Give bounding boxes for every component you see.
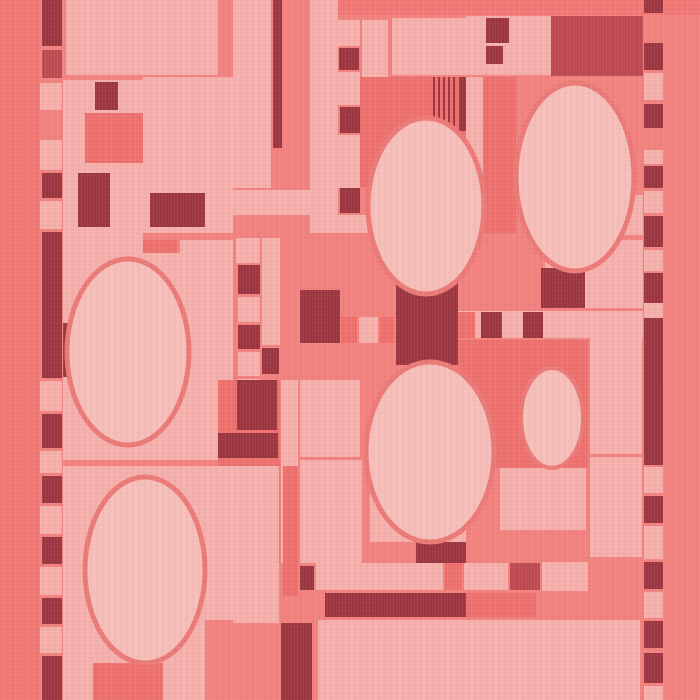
- tile: [341, 317, 357, 343]
- tile: [236, 238, 260, 263]
- tile: [644, 496, 663, 523]
- tile: [486, 18, 509, 43]
- tile: [218, 433, 278, 458]
- tile: [644, 562, 663, 589]
- tile: [40, 83, 62, 110]
- tile: [42, 598, 62, 624]
- tile: [590, 457, 642, 557]
- tile: [458, 312, 475, 338]
- tile: [42, 173, 62, 198]
- tile: [340, 188, 360, 213]
- tile: [262, 238, 280, 345]
- tile: [66, 0, 218, 75]
- tile: [510, 563, 540, 590]
- tile: [42, 476, 62, 503]
- tile: [40, 201, 62, 229]
- tile: [42, 0, 62, 46]
- tile: [42, 50, 62, 78]
- tile: [644, 303, 663, 318]
- tile: [237, 380, 277, 430]
- tile: [644, 73, 663, 100]
- tile: [95, 82, 118, 110]
- tile: [85, 113, 143, 163]
- tile: [63, 233, 143, 251]
- tile: [644, 191, 663, 213]
- large-dark-red-block: [551, 16, 643, 76]
- tile: [318, 620, 466, 700]
- tile: [644, 653, 663, 683]
- tile: [464, 563, 508, 590]
- tile: [93, 663, 163, 700]
- tile: [644, 273, 663, 303]
- top-border-band: [320, 0, 700, 15]
- tile: [40, 140, 62, 170]
- tile: [339, 48, 359, 70]
- tile: [362, 20, 388, 77]
- tile: [541, 268, 585, 308]
- tile: [40, 381, 62, 411]
- oval-top-center: [368, 118, 484, 294]
- long-dark-bar: [325, 593, 466, 617]
- tile: [300, 566, 314, 590]
- tile: [40, 451, 62, 473]
- tile: [483, 77, 516, 233]
- tile: [233, 190, 337, 215]
- tile: [523, 312, 543, 338]
- tile: [644, 592, 663, 618]
- tile: [233, 0, 271, 188]
- tile: [416, 542, 466, 563]
- tile: [644, 526, 663, 559]
- tile: [380, 317, 394, 343]
- tile: [42, 537, 62, 564]
- oval-top-right: [516, 83, 634, 271]
- tile: [453, 77, 455, 132]
- tile: [300, 290, 340, 343]
- tile: [40, 627, 62, 653]
- tile: [644, 621, 663, 648]
- tile: [644, 43, 663, 70]
- oval-mid-left: [67, 259, 189, 445]
- tile: [318, 460, 362, 563]
- tile: [445, 563, 462, 590]
- tile: [340, 107, 360, 133]
- tile: [338, 72, 360, 105]
- tile: [542, 562, 588, 591]
- tile: [281, 623, 312, 700]
- tile: [40, 506, 62, 534]
- tile: [644, 150, 663, 164]
- tile: [42, 656, 62, 700]
- tile: [283, 466, 298, 596]
- tile: [150, 193, 205, 227]
- tile: [500, 468, 586, 530]
- tile: [486, 46, 503, 64]
- tile: [644, 250, 663, 271]
- tile: [273, 0, 282, 148]
- tile: [42, 414, 62, 448]
- tile: [338, 135, 360, 188]
- tile: [644, 104, 663, 128]
- tile: [238, 297, 260, 322]
- tile: [316, 563, 443, 590]
- tile: [262, 348, 279, 374]
- tile: [392, 18, 466, 75]
- tile: [466, 593, 536, 617]
- tile: [238, 352, 260, 376]
- tile: [466, 620, 640, 700]
- tile: [42, 232, 62, 378]
- tile: [78, 173, 110, 227]
- oval-mid-center: [366, 362, 494, 542]
- tile: [163, 663, 203, 700]
- tile: [338, 20, 360, 46]
- tile: [644, 0, 663, 13]
- tile: [644, 686, 663, 700]
- tile: [40, 567, 62, 595]
- oval-small-right: [521, 368, 583, 468]
- oval-bottom-left: [85, 477, 205, 663]
- tile: [238, 325, 260, 349]
- tile: [644, 216, 663, 247]
- tile: [233, 466, 279, 623]
- tile: [205, 466, 233, 620]
- tile: [644, 467, 663, 493]
- tile: [590, 338, 642, 454]
- tile: [359, 317, 378, 343]
- tile: [300, 380, 360, 457]
- left-border-band: [0, 0, 40, 700]
- pattern-svg: [0, 0, 700, 700]
- tile: [644, 318, 663, 465]
- tile: [644, 166, 663, 188]
- tile: [481, 312, 502, 338]
- artwork-canvas: Abstract rectilinear textile pattern wit…: [0, 0, 700, 700]
- tile: [238, 265, 260, 294]
